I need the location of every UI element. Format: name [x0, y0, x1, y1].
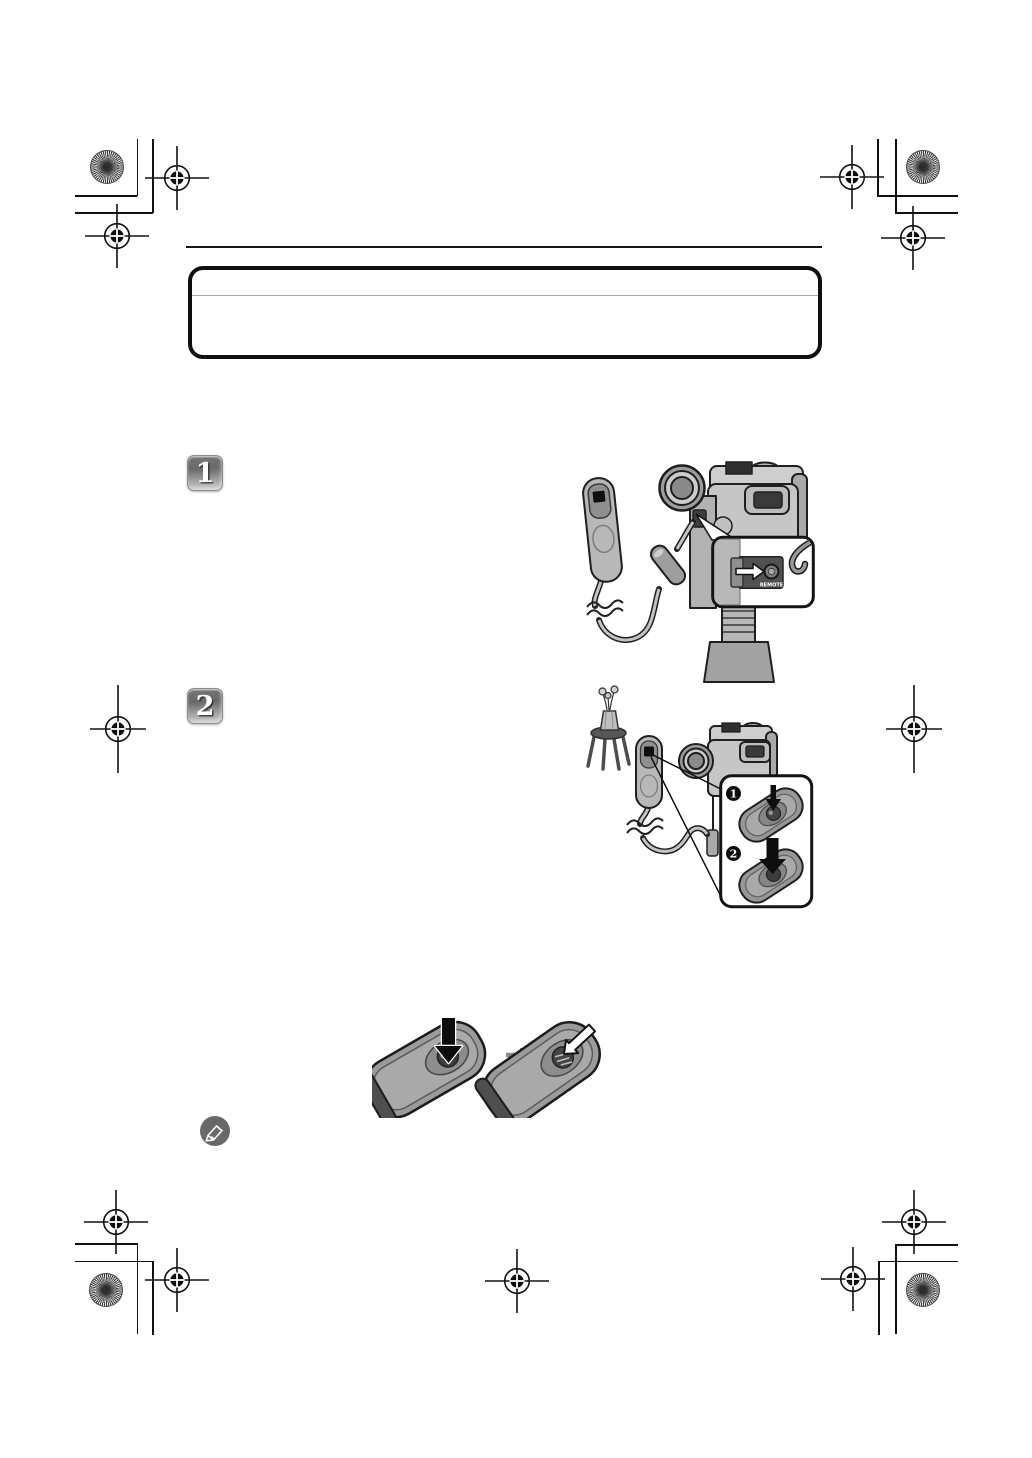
step-2-badge: 2 — [187, 688, 223, 724]
crop-line — [75, 212, 153, 214]
star-target-mark — [906, 150, 940, 184]
press-step-1-number: 1 — [730, 788, 738, 801]
registration-mark — [145, 146, 209, 210]
crop-line — [137, 139, 139, 196]
remote-jack-label: REMOTE — [760, 583, 784, 589]
star-target-mark — [90, 150, 124, 184]
remote-slide-lock-closeup — [473, 1012, 611, 1118]
tripod — [704, 604, 774, 682]
crop-line — [152, 139, 154, 213]
note-box-divider — [192, 295, 818, 296]
crop-line — [895, 212, 958, 214]
registration-mark — [882, 685, 946, 773]
manual-page: 1 — [0, 0, 1032, 1458]
crop-line — [895, 139, 897, 213]
crop-line — [877, 139, 879, 196]
half-press-arrow-icon — [771, 785, 777, 799]
step-2-illustration: 1 2 — [580, 682, 828, 934]
cable-break-squiggle — [627, 826, 663, 834]
subject-stool-with-flowers — [588, 686, 629, 769]
crop-line — [75, 1243, 137, 1245]
star-target-mark — [89, 1273, 123, 1307]
note-pencil-icon — [200, 1116, 230, 1146]
crop-line — [137, 1243, 139, 1334]
full-press-arrow-icon — [767, 838, 779, 859]
registration-mark — [821, 1247, 885, 1311]
remote-press-closeup — [372, 1012, 495, 1118]
remote-control — [582, 477, 624, 584]
crop-line — [152, 1261, 154, 1335]
step-1-number: 1 — [196, 458, 215, 489]
registration-mark — [86, 685, 150, 773]
crop-line — [877, 195, 958, 197]
step-2-number: 2 — [196, 691, 215, 722]
step-1-illustration: REMOTE — [560, 452, 818, 684]
crop-line — [895, 1244, 897, 1334]
crop-line — [878, 1261, 958, 1263]
crop-line — [878, 1261, 880, 1335]
cable-break-squiggle — [627, 818, 663, 826]
step-1-badge: 1 — [187, 455, 223, 491]
registration-mark — [881, 206, 945, 270]
crop-line — [75, 195, 137, 197]
registration-mark — [145, 1248, 209, 1312]
press-and-lock-illustration — [372, 1008, 640, 1118]
section-header-rule — [186, 246, 822, 248]
note-box — [188, 266, 822, 359]
crop-line — [75, 1261, 153, 1263]
registration-mark — [820, 145, 884, 209]
registration-mark — [485, 1249, 549, 1313]
star-target-mark — [906, 1273, 940, 1307]
cable-break-squiggle — [587, 608, 623, 616]
press-step-2-number: 2 — [730, 848, 738, 861]
ferrite-bead — [648, 542, 688, 587]
crop-line — [895, 1244, 958, 1246]
